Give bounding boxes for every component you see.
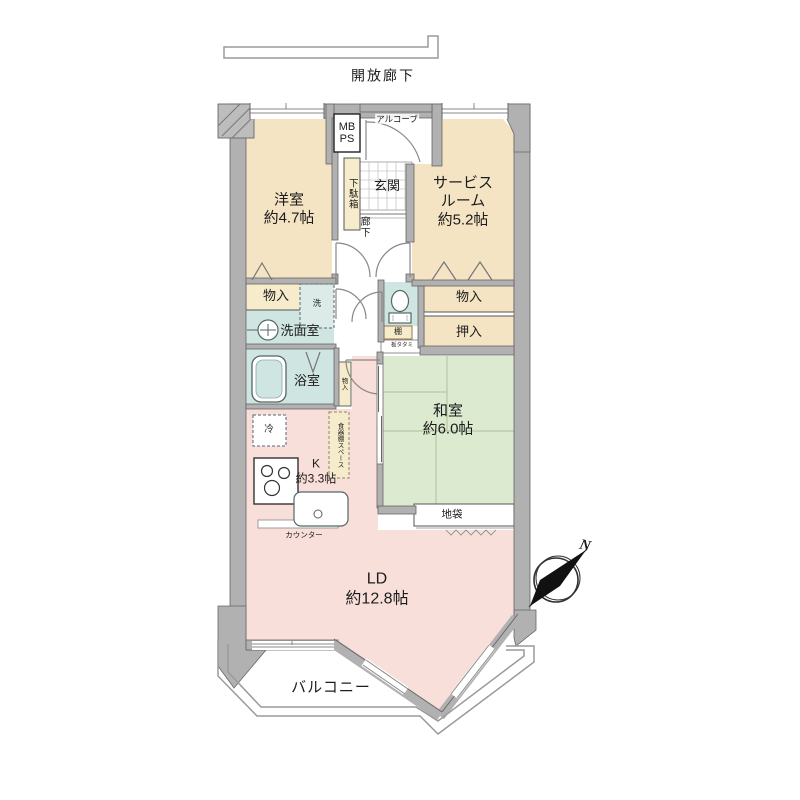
alcove-label: アルコーブ — [375, 114, 419, 124]
bathtub-icon — [252, 356, 286, 402]
balcony-label: バルコニー — [291, 679, 371, 697]
storage-left-label: 物入 — [263, 288, 289, 304]
storage-hall-label: 物入 — [339, 378, 347, 391]
japanese-room-size: 約6.0帖 — [423, 421, 474, 439]
hallway-label: 廊下 — [357, 216, 369, 238]
western-room-label: 洋室 約4.7帖 — [264, 192, 315, 229]
western-room-size: 約4.7帖 — [264, 210, 315, 228]
counter-label: カウンター — [285, 530, 323, 539]
service-room-label: サービス ルーム 約5.2帖 — [433, 175, 493, 230]
kitchen-size: 約3.3帖 — [296, 471, 337, 486]
service-room-name-2: ルーム — [433, 193, 493, 211]
wall-left — [230, 104, 246, 650]
meter-box-label: MB PS — [339, 121, 356, 145]
japanese-room-name: 和室 — [423, 403, 474, 421]
entrance-label: 玄関 — [374, 178, 400, 194]
floor-cabinet-label: 地袋 — [442, 509, 463, 522]
open-corridor-label: 開放廊下 — [351, 67, 415, 84]
stove-icon — [254, 458, 298, 504]
open-corridor-outline — [224, 36, 438, 58]
wall-right — [514, 118, 530, 616]
service-room-name-1: サービス — [433, 175, 493, 193]
service-room-size: 約5.2帖 — [433, 211, 493, 229]
storage-right-label: 物入 — [456, 289, 482, 305]
floor-plan: 開放廊下 MB PS アルコーブ 下駄箱 玄関 廊下 洋室 約4.7帖 サービス… — [0, 0, 800, 800]
mb-label: MB — [339, 121, 356, 133]
living-dining-size: 約12.8帖 — [345, 589, 408, 609]
living-dining-name: LD — [345, 569, 408, 589]
floor-cabinet-box — [414, 504, 514, 526]
western-room-name: 洋室 — [264, 192, 315, 210]
sink-icon — [294, 492, 348, 526]
hatched-corner — [218, 104, 254, 138]
japanese-room-label: 和室 約6.0帖 — [423, 403, 474, 440]
closet-label: 押入 — [456, 324, 482, 340]
ps-label: PS — [339, 133, 356, 145]
washroom-label: 洗面室 — [280, 323, 319, 339]
shelf-label: 棚 — [394, 327, 402, 337]
living-dining-label: LD 約12.8帖 — [345, 569, 408, 608]
fridge-label: 冷 — [264, 424, 274, 436]
kitchen-name: K — [296, 456, 337, 471]
toilet-icon — [389, 291, 411, 324]
board-tatami-label: 板タタミ — [391, 343, 413, 350]
shoe-cabinet-label: 下駄箱 — [346, 178, 358, 210]
compass-icon — [529, 549, 587, 607]
washer-label: 洗 — [313, 298, 322, 308]
bathroom-label: 浴室 — [294, 373, 320, 389]
kitchen-label: K 約3.3帖 — [296, 456, 337, 485]
